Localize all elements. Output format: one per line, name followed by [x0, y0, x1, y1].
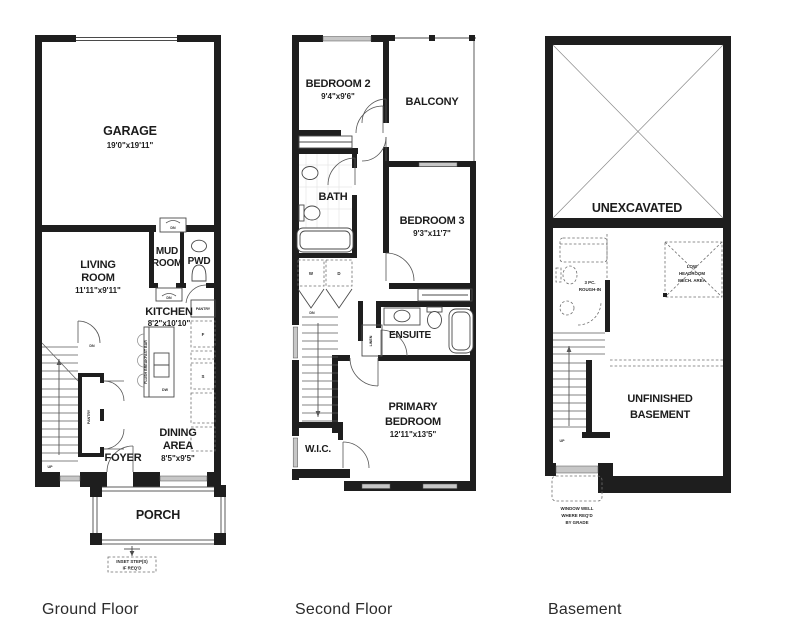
inset-steps-label-2: IF REQ'D [123, 566, 142, 571]
living-room-label-2: ROOM [81, 272, 114, 284]
unexcavated-label: UNEXCAVATED [592, 201, 682, 215]
rough-in-label-2: ROUGH-IN [579, 287, 601, 292]
ground-floor-caption: Ground Floor [42, 601, 139, 619]
garage-dims: 19'0"x19'11" [107, 141, 154, 150]
dw-label: DW [162, 388, 169, 392]
ground-floor-plan: GARAGE 19'0"x19'11" LIVING ROOM 11'11"x9… [28, 25, 233, 595]
window-well-label-3: BY GRADE [565, 520, 588, 525]
up-label: UP [560, 439, 566, 443]
mud-room-label-1: MUD [156, 246, 178, 257]
primary-dims: 12'11"x13'5" [390, 430, 437, 439]
primary-door [350, 358, 378, 386]
basement-plan: UNEXCAVATED 3 PC. ROUGH-IN LOW HEADROOM … [538, 28, 738, 563]
foyer-label: FOYER [105, 452, 142, 464]
up-label: UP [48, 465, 54, 469]
bedroom2-door [356, 106, 383, 133]
low-headroom-label-3: MECH. AREA [678, 278, 706, 283]
bedroom3-label: BEDROOM 3 [400, 215, 465, 227]
low-headroom-label-1: LOW [687, 264, 698, 269]
linen-label: LINEN [369, 335, 373, 346]
washer-dryer-closet [298, 260, 352, 308]
dryer-label: D [337, 271, 340, 276]
unexcavated-cross [553, 45, 723, 218]
dining-dims: 8'5"x9'5" [161, 454, 195, 463]
basement-stairs [553, 333, 605, 427]
living-room-dims: 11'11"x9'11" [75, 286, 121, 295]
porch-label: PORCH [136, 508, 180, 522]
dining-label-2: AREA [163, 440, 194, 452]
stove-label: S [202, 374, 205, 379]
dn-top-label: DN [170, 226, 176, 230]
ground-stairs [42, 321, 100, 461]
second-floor-caption: Second Floor [295, 601, 393, 619]
window-well-label-1: WINDOW WELL [561, 506, 594, 511]
second-floor-plan: BEDROOM 2 9'4"x9'6" BALCONY BATH BEDROOM… [286, 25, 486, 525]
pantry-closet-doors [104, 381, 124, 449]
dining-label-1: DINING [159, 427, 196, 439]
low-headroom-label-2: HEADROOM [679, 271, 705, 276]
kitchen-island [138, 327, 175, 397]
bedroom2-label: BEDROOM 2 [306, 78, 371, 90]
bedroom2-dims: 9'4"x9'6" [321, 92, 355, 101]
basement-walls [545, 36, 731, 493]
wic-label: W.I.C. [305, 444, 331, 455]
garage-label: GARAGE [103, 124, 157, 138]
unfinished-basement-label-2: BASEMENT [630, 409, 691, 421]
rough-in-fixtures [556, 234, 607, 325]
mech-area [663, 242, 722, 297]
bath-fixtures [297, 154, 355, 252]
inset-steps-label-1: INSET STEP(S) [116, 559, 148, 564]
bedroom3-dims: 9'3"x11'7" [413, 229, 451, 238]
bedroom3-door [386, 253, 414, 281]
porch-structure [90, 485, 226, 572]
dn-stairs-label: DN [89, 344, 95, 348]
window-well [552, 466, 602, 501]
dn-label: DN [309, 311, 315, 315]
balcony-label: BALCONY [406, 96, 460, 108]
powder-room-fixtures [186, 240, 207, 303]
bulkhead-lines [610, 360, 723, 366]
primary-label-2: BEDROOM [385, 416, 441, 428]
kitchen-label: KITCHEN [145, 306, 193, 318]
powder-room-label: PWD [188, 256, 211, 267]
floorplan-sheet: GARAGE 19'0"x19'11" LIVING ROOM 11'11"x9… [0, 0, 789, 634]
washer-label: W [309, 271, 314, 276]
unfinished-basement-label-1: UNFINISHED [627, 393, 692, 405]
mud-room-label-2: ROOM [152, 258, 182, 269]
pantry-cabinet-label: PANTRY [196, 307, 211, 311]
kitchen-dims: 8'2"x10'10" [148, 319, 191, 328]
flush-breakfast-bar-label: FLUSH BREAKFAST BAR [144, 340, 148, 384]
fridge-label: F [202, 332, 205, 337]
rough-in-label-1: 3 PC. [585, 280, 596, 285]
basement-caption: Basement [548, 601, 622, 619]
pantry-closet-label: PANTRY [87, 409, 91, 424]
ensuite-label: ENSUITE [389, 330, 431, 341]
dn-mid-label: DN [166, 296, 172, 300]
bedroom3-closet [418, 289, 472, 301]
window-well-label-2: WHERE REQ'D [561, 513, 592, 518]
wic-door [343, 442, 369, 468]
bath-label: BATH [319, 191, 348, 203]
linen-shelf [299, 136, 352, 148]
living-room-label-1: LIVING [80, 259, 115, 271]
primary-label-1: PRIMARY [389, 401, 439, 413]
